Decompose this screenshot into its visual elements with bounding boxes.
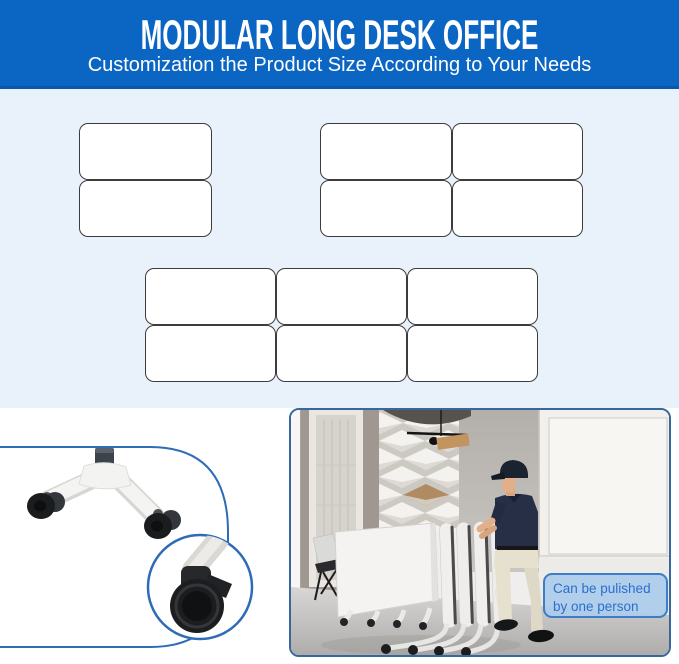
annotation-label: Can be pulished by one person <box>543 573 668 618</box>
annotation-text: Can be pulished by one person <box>553 581 651 614</box>
page-title: MODULAR LONG DESK OFFICE <box>129 11 550 59</box>
page-subtitle: Customization the Product Size According… <box>0 54 679 77</box>
desk-top <box>407 325 538 382</box>
desk-top <box>145 268 276 325</box>
desk-top <box>145 325 276 382</box>
desk-top <box>320 123 452 180</box>
desk-group-six <box>145 268 538 382</box>
desk-group-two <box>79 123 212 237</box>
desk-top <box>79 180 212 237</box>
caster-detail-panel <box>0 440 280 664</box>
caster-closeup-inset <box>148 535 252 639</box>
desk-top <box>79 123 212 180</box>
desk-top <box>320 180 452 237</box>
photo-scene <box>291 410 669 655</box>
desk-top <box>276 325 407 382</box>
desk-group-four <box>320 123 583 237</box>
layout-diagram-section <box>0 89 679 408</box>
desk-top <box>452 180 584 237</box>
product-image-page: MODULAR LONG DESK OFFICE Customization t… <box>0 0 679 664</box>
desk-top <box>276 268 407 325</box>
detail-section: Can be pulished by one person <box>0 408 679 664</box>
photo-panel: Can be pulished by one person <box>289 408 671 657</box>
desk-top <box>407 268 538 325</box>
header-banner: MODULAR LONG DESK OFFICE Customization t… <box>0 0 679 89</box>
desk-top <box>452 123 584 180</box>
